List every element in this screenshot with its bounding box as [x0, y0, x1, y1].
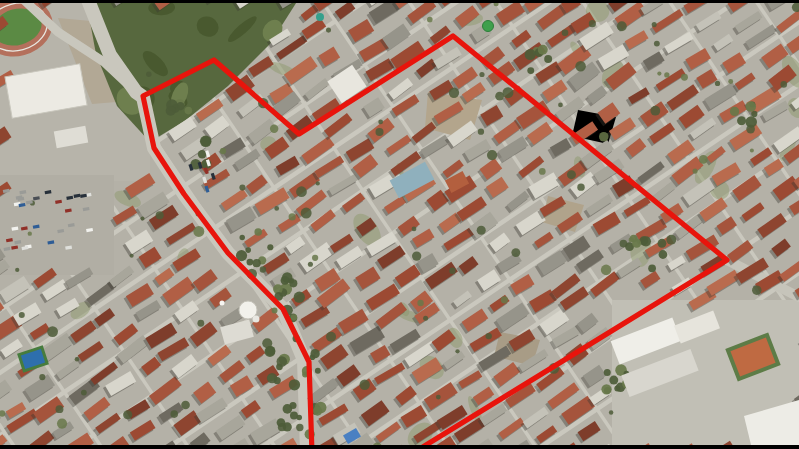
tree	[609, 376, 618, 385]
tree	[308, 262, 313, 267]
tree	[601, 265, 612, 276]
tree	[562, 29, 569, 36]
tree	[146, 72, 152, 78]
tree	[75, 357, 80, 362]
tree	[378, 119, 383, 124]
tree	[313, 406, 322, 415]
tree	[699, 155, 708, 164]
tree	[296, 424, 303, 431]
tree	[750, 148, 754, 152]
tree	[315, 368, 321, 374]
tree	[15, 268, 19, 272]
tree	[47, 326, 58, 337]
tree	[296, 186, 307, 197]
mosque-minaret	[220, 301, 225, 306]
tree	[289, 213, 296, 220]
aerial-photo	[0, 0, 799, 449]
tree	[19, 312, 25, 318]
tree	[289, 379, 300, 390]
tree	[737, 116, 746, 125]
tree	[657, 71, 661, 75]
tree	[312, 255, 318, 261]
tree	[449, 268, 455, 274]
tree	[609, 410, 613, 414]
tree	[487, 150, 497, 160]
tree	[478, 129, 484, 135]
tree	[245, 247, 251, 253]
tree	[681, 74, 688, 81]
tree	[291, 314, 297, 320]
tree	[599, 132, 609, 142]
tree	[123, 410, 132, 419]
tree	[648, 264, 656, 272]
tree	[294, 292, 305, 303]
tree	[567, 170, 576, 179]
tree	[730, 107, 739, 116]
tree	[620, 240, 628, 248]
tree	[260, 266, 266, 272]
tree	[326, 332, 336, 342]
tree	[316, 181, 320, 185]
tree	[197, 320, 204, 327]
tree	[511, 248, 520, 257]
tree	[289, 279, 297, 287]
tree	[544, 55, 552, 63]
tree	[56, 405, 64, 413]
teal-minaret	[316, 13, 324, 21]
tree	[604, 369, 611, 376]
tree	[659, 250, 668, 259]
tree	[658, 239, 667, 248]
tree	[220, 148, 226, 154]
tree	[751, 111, 757, 117]
tree	[254, 228, 262, 236]
tree	[449, 88, 459, 98]
parking-lot	[0, 175, 114, 275]
tree	[270, 124, 278, 132]
tree	[614, 385, 620, 391]
mosque-half-dome	[253, 316, 260, 323]
green-dome-mosque	[483, 21, 494, 32]
tree	[666, 235, 676, 245]
tree	[654, 41, 660, 47]
aerial-photo-figure	[0, 0, 799, 449]
tree	[746, 125, 755, 134]
tree	[589, 20, 596, 27]
tree	[181, 401, 190, 410]
tree	[272, 307, 278, 313]
tree	[57, 419, 67, 429]
tree	[301, 208, 312, 219]
tree	[728, 79, 733, 84]
tree	[81, 390, 87, 396]
tree	[185, 107, 193, 115]
letterbox-top	[0, 0, 799, 3]
tree	[479, 72, 484, 77]
tree	[427, 17, 433, 23]
tree	[201, 136, 211, 146]
tree	[501, 296, 508, 303]
tree	[417, 300, 423, 306]
tree	[267, 373, 277, 383]
tree	[601, 384, 611, 394]
tree	[664, 72, 669, 77]
tree	[262, 338, 272, 348]
tree	[156, 211, 164, 219]
tree	[617, 21, 627, 31]
tree	[253, 259, 261, 267]
tree	[283, 404, 293, 414]
tree	[412, 251, 421, 260]
tree	[538, 45, 548, 55]
tree	[455, 349, 459, 353]
tree	[575, 61, 586, 72]
tree	[412, 227, 417, 232]
tree	[746, 101, 756, 111]
tree	[274, 206, 279, 211]
tree	[170, 410, 178, 418]
tree	[477, 226, 486, 235]
tree	[436, 395, 441, 400]
tree	[527, 67, 534, 74]
tree	[641, 236, 651, 246]
tree	[629, 237, 634, 242]
tree	[277, 356, 288, 367]
tree	[652, 22, 657, 27]
tree	[326, 28, 331, 33]
tree	[752, 285, 762, 295]
tree	[423, 316, 428, 321]
tree	[141, 217, 145, 221]
tree	[558, 103, 563, 108]
tree	[650, 106, 660, 116]
tree	[166, 106, 176, 116]
tree	[359, 380, 369, 390]
tree	[278, 423, 286, 431]
tree	[502, 87, 513, 98]
tree	[539, 168, 546, 175]
tree	[193, 226, 204, 237]
tree	[525, 49, 536, 60]
tree	[485, 333, 491, 339]
letterbox-bottom	[0, 445, 799, 449]
tree	[239, 185, 245, 191]
tree	[577, 183, 584, 190]
tree	[267, 244, 273, 250]
tree	[780, 81, 787, 88]
tree	[375, 128, 383, 136]
tree	[130, 254, 134, 258]
tree	[247, 259, 254, 266]
tree	[693, 169, 698, 174]
tree	[715, 81, 720, 86]
tree	[240, 235, 245, 240]
tree	[296, 415, 302, 421]
tree	[39, 374, 45, 380]
tree	[28, 232, 32, 236]
